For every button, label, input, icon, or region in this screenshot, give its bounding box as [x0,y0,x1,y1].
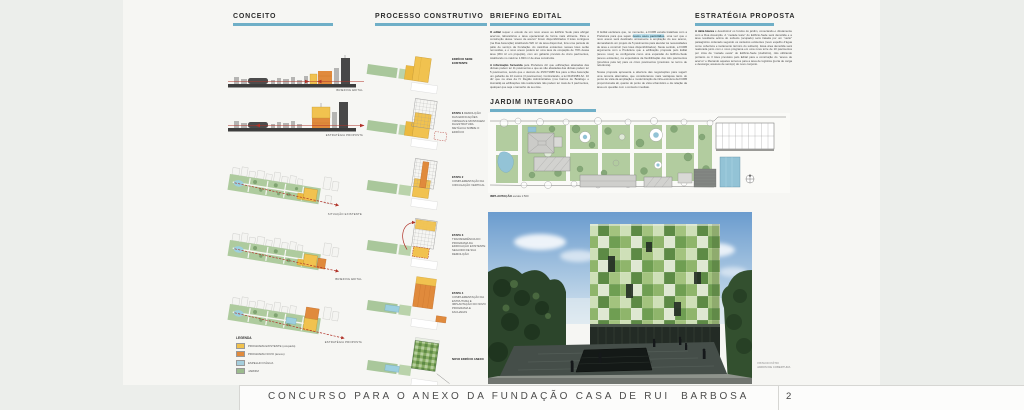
process-caption-6: NOVO EDIFÍCIO ANEXO [452,358,486,362]
legend-label: PROGRAMA EXISTENTE (ocupado) [248,344,295,348]
footer-divider [778,385,779,410]
skyline-caption-estrategia: ESTRATÉGIA PROPOSTA [243,133,363,137]
legend-swatch-agua [236,360,245,366]
reflecting-pool [498,342,728,380]
site-plan [488,113,790,193]
skyline-estrategia-diagram [228,102,365,132]
new-annex-building-plan [716,123,774,151]
section-title-estrategia: ESTRATÉGIA PROPOSTA [695,13,795,20]
page-number: 2 [786,391,791,402]
construction-process-diagrams [366,34,454,386]
briefing-column-1: O edital requer o estudo de um novo anex… [490,31,589,89]
step-novo-edificio [366,331,454,386]
legend-swatch-novo [236,351,245,357]
board-title: CONCURSO PARA O ANEXO DA FUNDAÇÃO CASA D… [239,391,778,402]
step-edificio-existente [366,50,441,94]
plan-caption: IMPLANTAÇÃO escala 1:500 [490,194,529,198]
axon-caption-briefing: BRIEFING EDITAL [242,277,362,281]
step-etapa-1 [366,92,451,151]
skyline-diagrams [226,50,366,142]
conceito-underline [233,23,333,26]
briefing-underline [490,23,590,26]
section-title-jardim: JARDIM INTEGRADO [490,99,574,106]
step-etapa-2 [366,152,443,210]
briefing-column-2: O Edital esclarece que, no momento, a FC… [597,31,687,89]
step-etapa-4 [366,270,451,331]
axon-caption-situacao: SITUAÇÃO EXISTENTE [242,212,362,216]
process-caption-4: ETAPA 3 TRANSFERÊNCIA DO PROGRAMA DA EDI… [452,234,486,257]
step-etapa-3 [366,212,443,270]
presentation-board-page: CONCEITO PROCESSO CONSTRUTIVO BRIEFING E… [0,0,1024,410]
legend-item: ESPELHO D'ÁGUA [236,360,306,366]
legend-item: JARDIM [236,368,306,374]
skyline-caption-briefing: BRIEFING EDITAL [243,88,363,92]
processo-underline [375,23,487,26]
axonometric-site-diagrams [226,148,366,363]
axon-estrategia-proposta [227,292,348,338]
section-title-conceito: CONCEITO [233,13,276,20]
legend-item: PROGRAMA EXISTENTE (ocupado) [236,343,306,349]
process-caption-3: ETAPA 2 COMPLEMENTAÇÃO DA CIRCULAÇÃO VER… [452,176,486,187]
estrategia-underline [695,23,774,26]
photo-caption: VISTA DO PÁTIO JARDIM DE COBERTURA [757,362,817,370]
process-caption-2: ETAPA 1 DEMOLIÇÃO DAS EDIFICAÇÕES VIZINH… [452,112,486,135]
legend-label: ESPELHO D'ÁGUA [248,361,273,365]
legend-swatch-jardim [236,368,245,374]
legend-label: PROGRAMA NOVO (anexo) [248,352,285,356]
section-title-processo: PROCESSO CONSTRUTIVO [375,13,484,20]
section-title-briefing: BRIEFING EDITAL [490,13,562,20]
process-caption-1: EDIFÍCIO SEDE EXISTENTE [452,58,486,66]
legend-title: LEGENDA [236,336,306,340]
render-view-photo [488,212,752,384]
axon-situacao-existente [227,162,342,207]
legend: LEGENDA PROGRAMA EXISTENTE (ocupado) PRO… [236,336,306,374]
legend-swatch-existente [236,343,245,349]
skyline-briefing-diagram [228,55,364,88]
jardim-underline [490,109,596,112]
estrategia-column: A idéia básica é desobstruir os fundos d… [695,30,792,67]
process-caption-5: ETAPA 4 COMPLEMENTAÇÃO DA ESTRUTURA E IM… [452,292,486,315]
legend-item: PROGRAMA NOVO (anexo) [236,351,306,357]
legend-label: JARDIM [248,369,259,373]
